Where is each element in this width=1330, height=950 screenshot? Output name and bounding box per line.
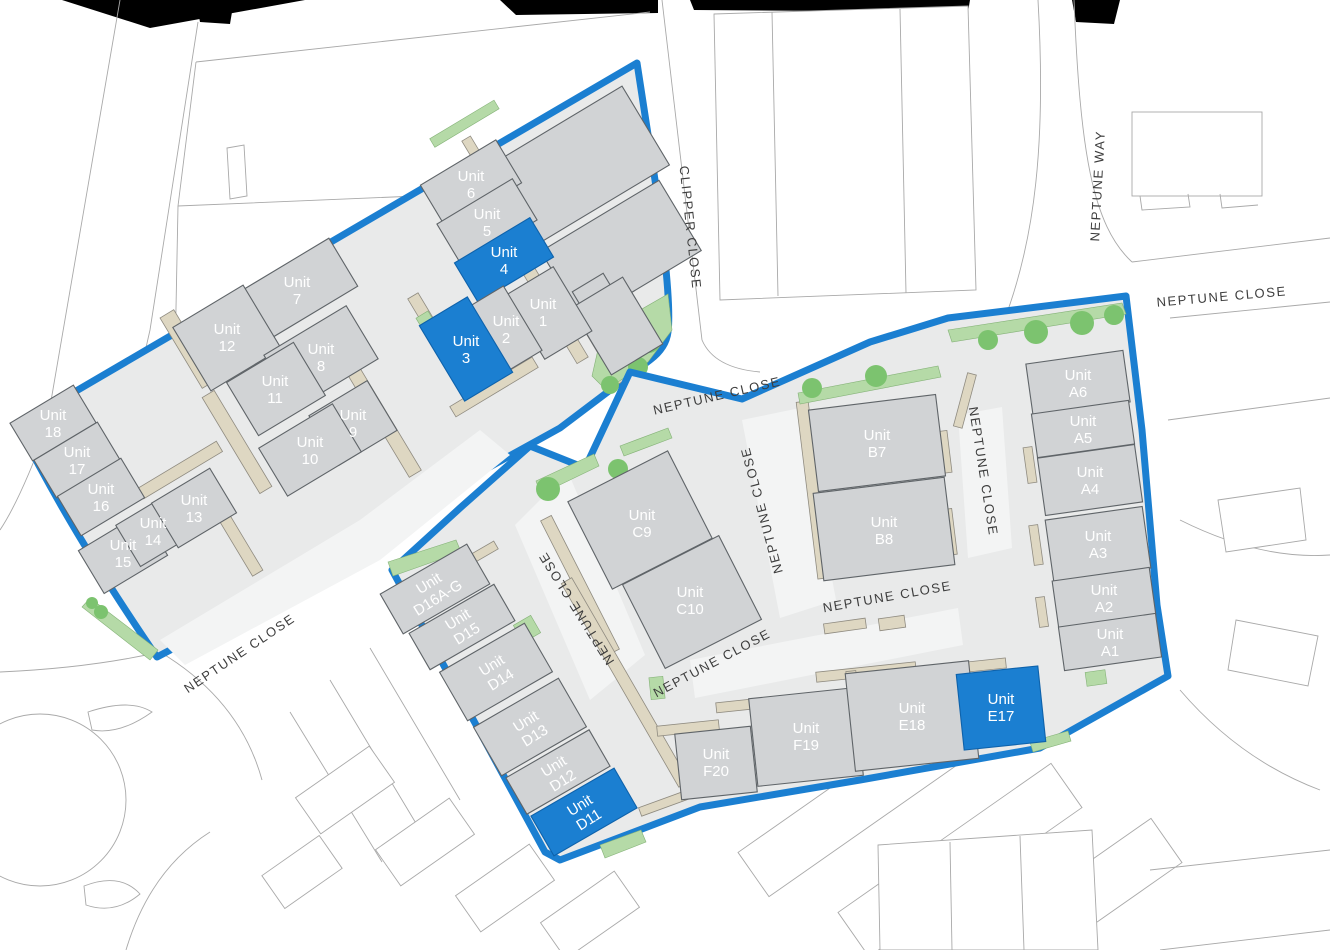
unit-label-C10[interactable]: UnitC10	[676, 584, 704, 618]
tree	[802, 378, 822, 398]
background-black-block	[62, 0, 305, 28]
landscape-area	[1085, 670, 1107, 687]
tree	[978, 330, 998, 350]
roundabout	[0, 714, 126, 886]
background-building	[878, 830, 1098, 950]
background-road-line	[1168, 398, 1330, 790]
street-label-neptune-close-top-right: NEPTUNE CLOSE	[1156, 283, 1287, 309]
background-house	[262, 836, 342, 909]
background-black-block	[196, 0, 234, 24]
street-label-neptune-way: NEPTUNE WAY	[1087, 130, 1108, 242]
background-building	[1228, 620, 1318, 686]
tree	[1070, 311, 1094, 335]
background-building	[1132, 112, 1262, 196]
background-house	[376, 798, 475, 886]
unit-label-E17[interactable]: UnitE17	[988, 691, 1016, 725]
tree	[1024, 320, 1048, 344]
unit-label-E18[interactable]: UnitE18	[899, 700, 927, 734]
background-building	[227, 145, 247, 199]
site-plan-map: CLIPPER CLOSENEPTUNE WAYNEPTUNE CLOSENEP…	[0, 0, 1330, 950]
roundabout-road-line	[0, 652, 262, 950]
tree	[601, 376, 619, 394]
background-house	[296, 746, 395, 834]
tree	[1104, 305, 1124, 325]
background-house	[456, 844, 555, 932]
background-building	[1218, 488, 1306, 552]
neptune-way-road-line	[1002, 0, 1041, 326]
background-black-block	[1072, 0, 1120, 24]
background-building	[714, 6, 976, 300]
tree	[865, 365, 887, 387]
traffic-island	[88, 705, 152, 731]
traffic-island	[84, 881, 140, 909]
tree	[536, 477, 560, 501]
unit-label-F19[interactable]: UnitF19	[793, 720, 821, 754]
background-house	[541, 871, 640, 950]
tree	[86, 597, 98, 609]
unit-label-F20[interactable]: UnitF20	[703, 746, 731, 780]
background-black-block	[500, 0, 658, 15]
